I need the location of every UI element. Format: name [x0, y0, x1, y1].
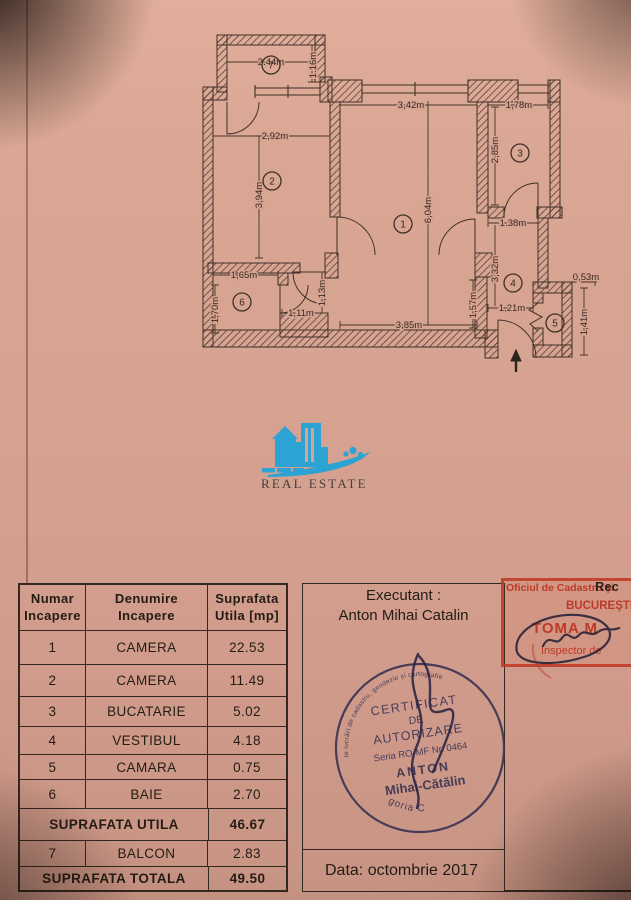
table-subtotal-row: SUPRAFATA UTILA 46.67 [20, 809, 286, 841]
date-cell: Data: octombrie 2017 [303, 849, 504, 891]
table-row: 7 BALCON 2.83 [20, 841, 286, 867]
bottom-rule [505, 890, 631, 892]
table-row: 1 CAMERA 22.53 [20, 631, 286, 665]
col-header: Denumire [115, 591, 178, 608]
floor-plan: 2.44m 1.16m 2,92m 3,94m 3,42m 6,04m 3,85… [185, 25, 615, 380]
logo-title: REAL ESTATE [261, 476, 368, 491]
table-row: 5 CAMARA 0.75 [20, 755, 286, 780]
dim-room3-height: 2,85m [490, 137, 501, 163]
col-header: Numar [31, 591, 74, 608]
dim-vestibule-door: 1,11m [288, 308, 314, 319]
room-number: 3 [517, 149, 523, 160]
table-total-row: SUPRAFATA TOTALA 49.50 [20, 867, 286, 890]
dim-room1-width-bottom: 3,85m [396, 320, 422, 331]
dim-room2-width: 2,92m [262, 131, 288, 142]
area-table: NumarIncapere DenumireIncapere Suprafata… [18, 583, 288, 892]
table-row: 3 BUCATARIE 5.02 [20, 697, 286, 727]
dim-hall-width: 1.38m [500, 218, 526, 229]
room-number: 6 [239, 298, 245, 309]
dim-hall-left: 1,57m [468, 292, 479, 318]
dim-vestibule-width: 1,13m [317, 280, 328, 306]
paper-crease-line [26, 0, 28, 584]
dim-hall-height: 3,32m [490, 256, 501, 282]
plan-dimension-lines [211, 45, 597, 355]
dim-bath-height: 1,70m [210, 297, 221, 323]
dim-bath-width: 1,65m [231, 270, 257, 281]
dim-room1-height: 6,04m [423, 197, 434, 223]
room-number: 7 [268, 61, 274, 72]
table-row: 6 BAIE 2.70 [20, 780, 286, 809]
room-number: 5 [552, 319, 558, 330]
col-header: Suprafata [215, 591, 279, 608]
dim-hall-door: 1,21m [499, 303, 525, 314]
overlapping-print-text: Rec [595, 579, 619, 594]
dim-room1-width: 3,42m [398, 100, 424, 111]
entrance-arrow-icon [511, 350, 521, 372]
real-estate-logo: REAL ESTATE [258, 415, 376, 495]
logo-buildings-icon [262, 423, 370, 477]
room-number: 2 [269, 177, 275, 188]
dim-room3-width: 1,78m [506, 100, 532, 111]
room-number: 4 [510, 279, 516, 290]
dim-pantry-height: 1,41m [579, 309, 590, 335]
dim-pantry-width: 0,53m [573, 272, 599, 283]
executant-label: Executant : [303, 587, 504, 604]
inspector-signature [505, 598, 631, 690]
executant-name: Anton Mihai Catalin [303, 607, 504, 624]
dim-balcony-depth: 1.16m [308, 52, 319, 78]
table-row: 4 VESTIBUL 4.18 [20, 727, 286, 755]
table-header-row: NumarIncapere DenumireIncapere Suprafata… [20, 585, 286, 631]
authorization-round-stamp: Persoană fizică autorizată de ANCPI să e… [318, 646, 523, 851]
dim-room2-height: 3,94m [254, 182, 265, 208]
room-number: 1 [400, 220, 406, 231]
table-row: 2 CAMERA 11.49 [20, 665, 286, 697]
